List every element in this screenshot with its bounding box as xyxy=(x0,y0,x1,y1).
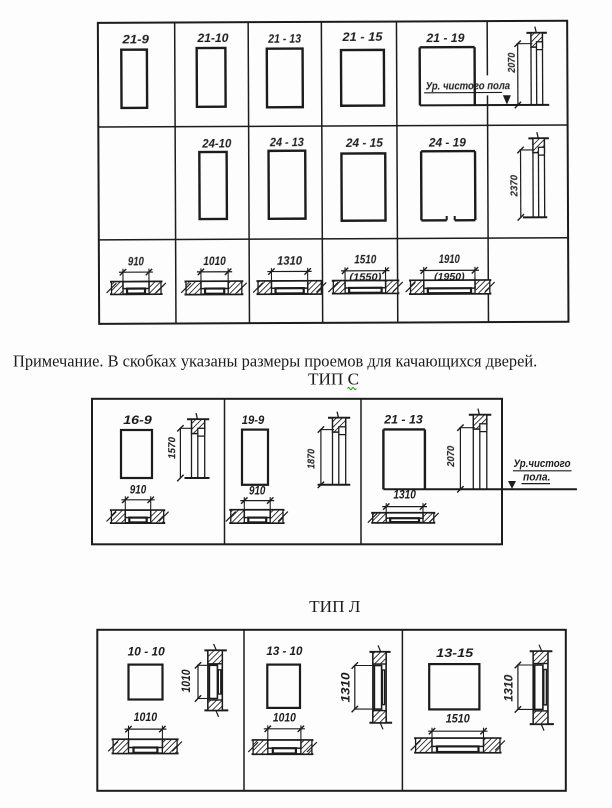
svg-text:910: 910 xyxy=(130,485,147,497)
svg-text:21 - 13: 21 - 13 xyxy=(267,34,302,46)
svg-text:13 - 10: 13 - 10 xyxy=(266,646,303,658)
svg-text:Примечание. В скобках указаны: Примечание. В скобках указаны размеры пр… xyxy=(13,352,537,371)
svg-text:1510: 1510 xyxy=(354,254,377,266)
svg-text:910: 910 xyxy=(128,256,145,268)
svg-text:Ур. чистого пола: Ур. чистого пола xyxy=(426,80,511,92)
svg-text:19-9: 19-9 xyxy=(242,415,265,427)
svg-text:10 - 10: 10 - 10 xyxy=(128,647,166,659)
svg-text:910: 910 xyxy=(249,485,266,497)
svg-text:24 - 15: 24 - 15 xyxy=(345,138,384,150)
svg-text:1310: 1310 xyxy=(393,490,416,502)
svg-text:2070: 2070 xyxy=(507,52,518,73)
svg-text:21-10: 21-10 xyxy=(196,33,229,45)
svg-text:1870: 1870 xyxy=(307,449,318,469)
svg-text:24 - 19: 24 - 19 xyxy=(428,137,467,149)
svg-text:1010: 1010 xyxy=(134,712,158,724)
svg-text:ТИП Л: ТИП Л xyxy=(309,597,361,616)
svg-text:пола.: пола. xyxy=(523,472,551,484)
svg-text:1310: 1310 xyxy=(277,255,303,267)
svg-text:1310: 1310 xyxy=(502,674,516,701)
svg-text:2370: 2370 xyxy=(509,175,520,198)
svg-text:21 - 13: 21 - 13 xyxy=(383,415,423,427)
svg-text:1910: 1910 xyxy=(439,254,461,266)
svg-text:1310: 1310 xyxy=(339,672,353,702)
svg-text:ТИП С: ТИП С xyxy=(308,370,359,389)
svg-text:16-9: 16-9 xyxy=(123,415,152,427)
svg-text:21 - 15: 21 - 15 xyxy=(341,32,383,44)
svg-text:1010: 1010 xyxy=(181,669,193,693)
svg-text:1510: 1510 xyxy=(446,714,471,726)
svg-text:13-15: 13-15 xyxy=(436,648,474,660)
svg-text:24-10: 24-10 xyxy=(201,138,232,150)
svg-text:1010: 1010 xyxy=(203,256,226,268)
svg-text:21-9: 21-9 xyxy=(121,34,149,46)
svg-text:24 - 13: 24 - 13 xyxy=(269,137,305,149)
svg-text:2070: 2070 xyxy=(446,445,457,467)
svg-text:21 - 19: 21 - 19 xyxy=(425,33,465,45)
svg-text:1010: 1010 xyxy=(273,712,297,724)
svg-text:1570: 1570 xyxy=(167,437,178,459)
svg-text:Ур.чистого: Ур.чистого xyxy=(514,458,571,470)
